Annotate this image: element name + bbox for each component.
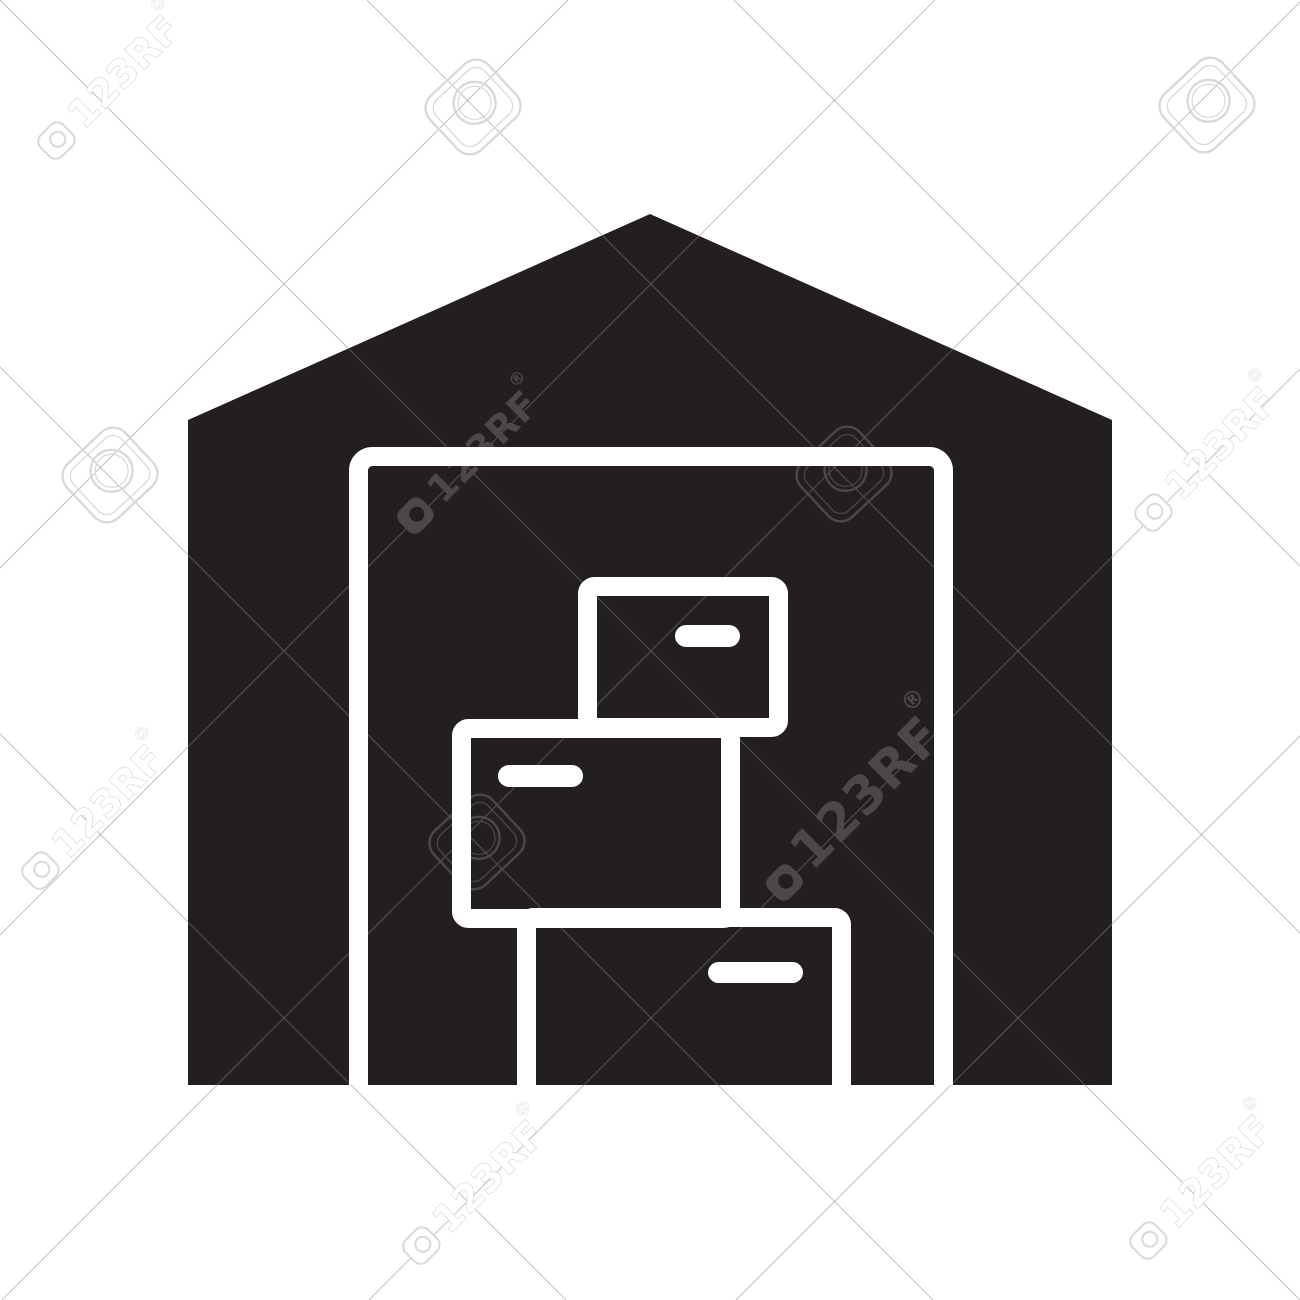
middle-box-handle-dash	[498, 765, 583, 787]
stock-image-canvas: 123RF®123RF® 123RF®123RF®123RF®123RF®123…	[0, 0, 1300, 1300]
watermark-123rf-unit: 123RF®	[386, 1095, 562, 1271]
123rf-camera-tag-icon	[400, 1224, 444, 1268]
registered-trademark-symbol: ®	[129, 720, 156, 747]
123rf-large-logo-mark	[1153, 51, 1262, 160]
123rf-camera-tag-icon	[19, 849, 63, 893]
123rf-camera-tag-icon	[1127, 1219, 1171, 1263]
watermark-brand-text: 123RF	[43, 737, 173, 867]
watermark-brand-text: 123RF	[59, 7, 189, 137]
registered-trademark-symbol: ®	[510, 1095, 537, 1122]
watermark-123rf-unit: 123RF®	[1113, 1090, 1289, 1266]
123rf-camera-tag-icon	[1132, 491, 1176, 535]
registered-trademark-symbol: ®	[1237, 1090, 1264, 1117]
watermark-123rf-unit: 123RF®	[1118, 362, 1294, 538]
bottom-box-handle-dash	[708, 962, 803, 983]
watermark-brand-text: 123RF	[424, 1112, 554, 1242]
123rf-large-logo-mark	[419, 53, 528, 162]
top-box-handle-dash	[675, 625, 740, 647]
watermarked-warehouse-icon: 123RF®123RF® 123RF®123RF®123RF®123RF®123…	[0, 0, 1300, 1300]
watermark-brand-text: 123RF	[1151, 1107, 1281, 1237]
watermark-123rf-unit: 123RF®	[5, 720, 181, 896]
123rf-large-logo-mark	[56, 421, 165, 530]
watermark-123rf-unit: 123RF®	[21, 0, 197, 167]
registered-trademark-symbol: ®	[1242, 362, 1269, 389]
123rf-camera-tag-icon	[35, 119, 79, 163]
watermark-brand-text: 123RF	[1156, 379, 1286, 509]
